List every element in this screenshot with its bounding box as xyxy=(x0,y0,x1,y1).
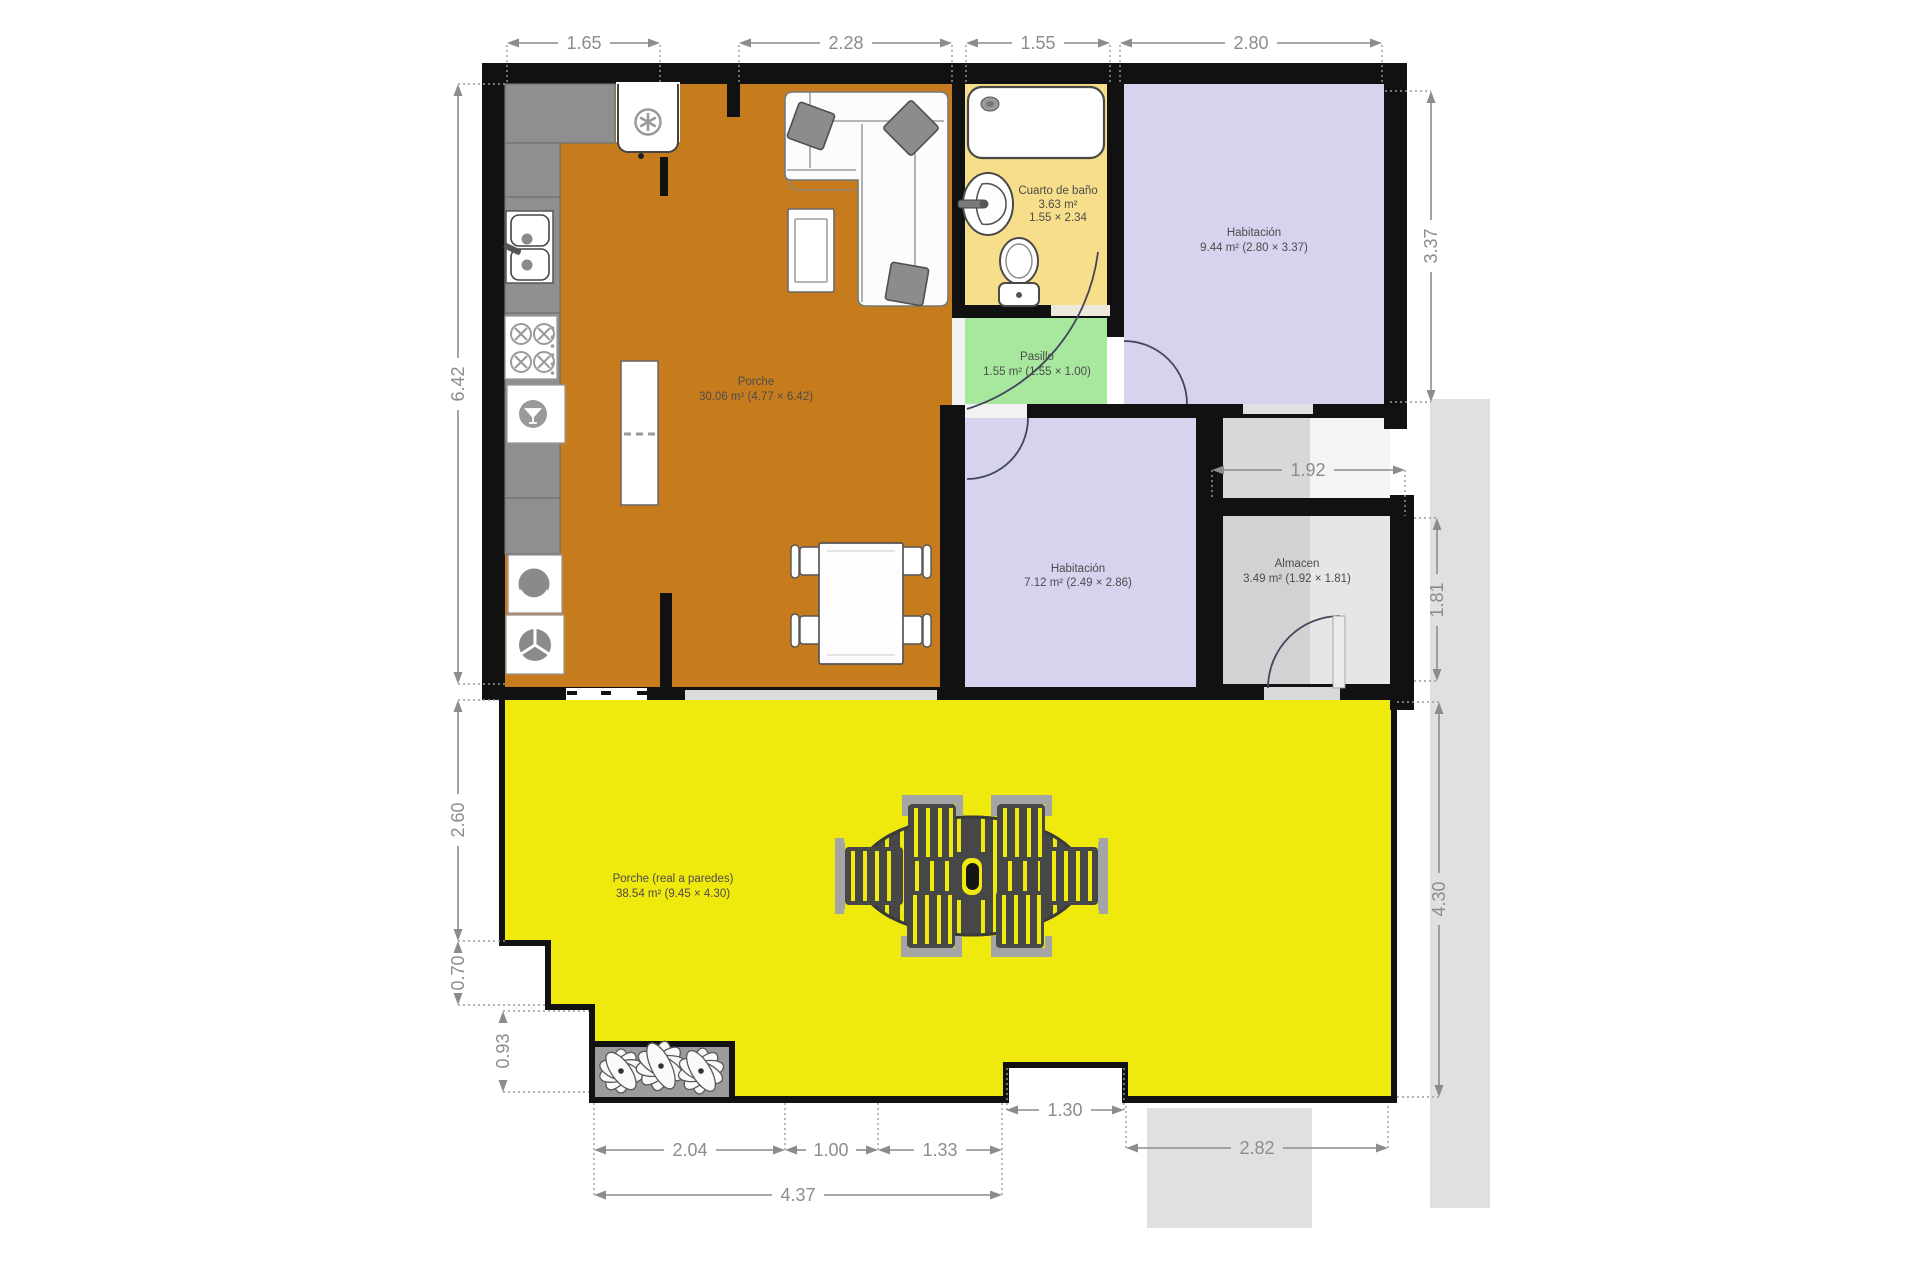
svg-text:1.81: 1.81 xyxy=(1427,582,1447,617)
svg-text:3.49 m² (1.92 × 1.81): 3.49 m² (1.92 × 1.81) xyxy=(1243,573,1351,585)
svg-text:6.42: 6.42 xyxy=(448,366,468,401)
svg-text:2.80: 2.80 xyxy=(1233,33,1268,53)
svg-text:2.28: 2.28 xyxy=(828,33,863,53)
svg-text:2.04: 2.04 xyxy=(672,1140,707,1160)
svg-text:4.37: 4.37 xyxy=(780,1185,815,1205)
svg-text:3.37: 3.37 xyxy=(1421,228,1441,263)
svg-text:Cuarto de baño: Cuarto de baño xyxy=(1018,185,1097,197)
svg-text:2.60: 2.60 xyxy=(448,802,468,837)
svg-text:1.55 × 2.34: 1.55 × 2.34 xyxy=(1029,212,1087,224)
svg-text:9.44 m² (2.80 × 3.37): 9.44 m² (2.80 × 3.37) xyxy=(1200,242,1308,254)
svg-text:1.55: 1.55 xyxy=(1020,33,1055,53)
svg-text:Porche (real a paredes): Porche (real a paredes) xyxy=(613,873,734,885)
svg-text:Habitación: Habitación xyxy=(1051,563,1105,575)
svg-text:1.55 m² (1.55 × 1.00): 1.55 m² (1.55 × 1.00) xyxy=(983,366,1091,378)
svg-text:Porche: Porche xyxy=(738,376,774,388)
svg-text:Habitación: Habitación xyxy=(1227,227,1281,239)
svg-text:1.65: 1.65 xyxy=(566,33,601,53)
svg-text:0.93: 0.93 xyxy=(493,1033,513,1068)
svg-text:1.00: 1.00 xyxy=(813,1140,848,1160)
svg-text:1.33: 1.33 xyxy=(922,1140,957,1160)
svg-text:2.82: 2.82 xyxy=(1239,1138,1274,1158)
svg-text:Pasillo: Pasillo xyxy=(1020,351,1054,363)
svg-text:Almacen: Almacen xyxy=(1275,558,1320,570)
svg-text:38.54 m² (9.45 × 4.30): 38.54 m² (9.45 × 4.30) xyxy=(616,888,730,900)
svg-text:30.06 m² (4.77 × 6.42): 30.06 m² (4.77 × 6.42) xyxy=(699,391,813,403)
svg-text:3.63 m²: 3.63 m² xyxy=(1039,199,1078,211)
svg-text:7.12 m² (2.49 × 2.86): 7.12 m² (2.49 × 2.86) xyxy=(1024,577,1132,589)
svg-text:0.70: 0.70 xyxy=(448,955,468,990)
svg-text:1.92: 1.92 xyxy=(1290,460,1325,480)
svg-text:1.30: 1.30 xyxy=(1047,1100,1082,1120)
svg-text:4.30: 4.30 xyxy=(1429,881,1449,916)
